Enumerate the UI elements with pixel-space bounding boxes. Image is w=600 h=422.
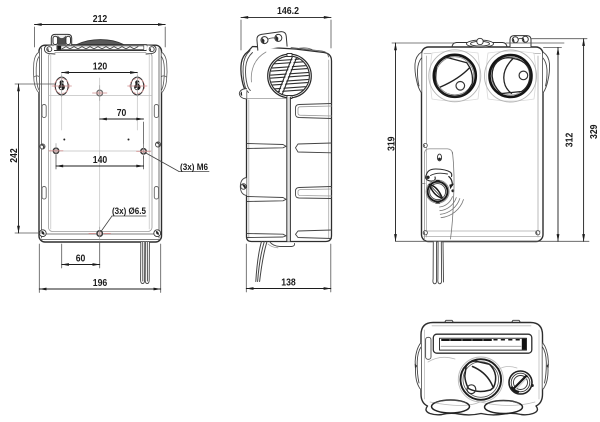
- svg-text:329: 329: [589, 124, 600, 139]
- svg-text:242: 242: [9, 148, 20, 163]
- svg-text:146.2: 146.2: [277, 6, 299, 17]
- svg-text:120: 120: [93, 62, 108, 73]
- svg-text:196: 196: [93, 278, 108, 289]
- svg-text:(3x) M6: (3x) M6: [180, 162, 208, 173]
- svg-text:319: 319: [387, 136, 398, 151]
- svg-text:138: 138: [281, 277, 296, 288]
- svg-text:212: 212: [93, 14, 108, 25]
- svg-text:140: 140: [93, 155, 108, 166]
- svg-text:(3x) Ø6.5: (3x) Ø6.5: [112, 206, 147, 217]
- svg-text:70: 70: [117, 108, 127, 119]
- svg-text:60: 60: [76, 253, 86, 264]
- svg-text:312: 312: [564, 132, 575, 147]
